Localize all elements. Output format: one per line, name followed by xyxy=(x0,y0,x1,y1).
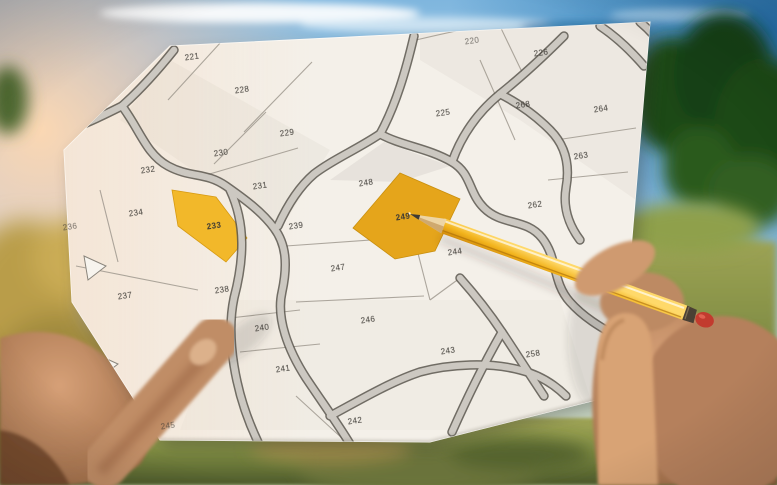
scene-canvas xyxy=(0,0,777,485)
photo-scene: 2212282292302312322202252262682642632622… xyxy=(0,0,777,485)
vignette xyxy=(0,0,777,485)
